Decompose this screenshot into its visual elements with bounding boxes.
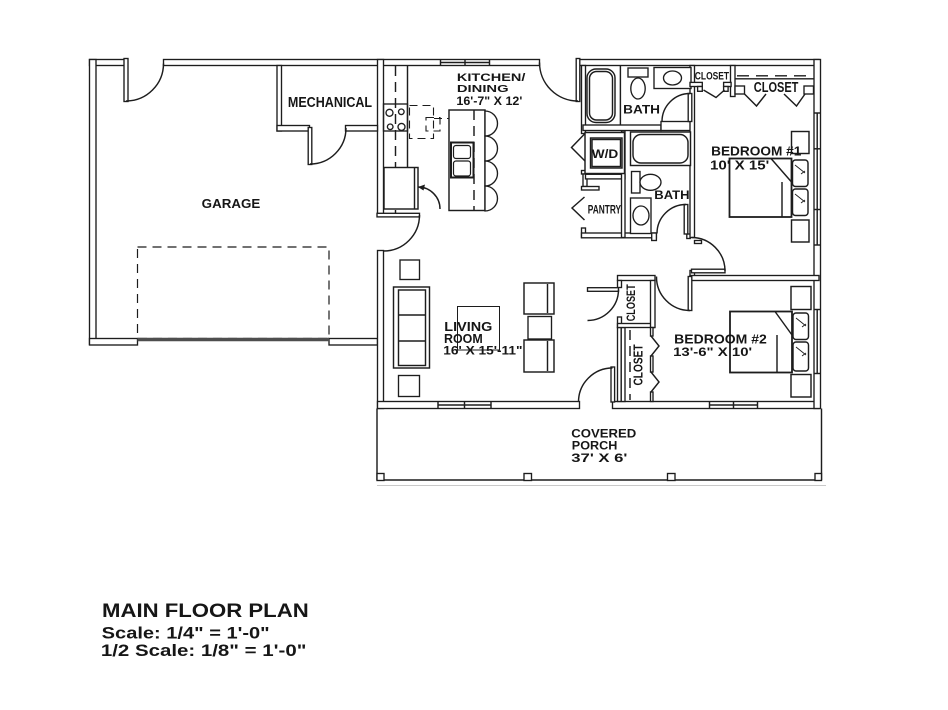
svg-text:PANTRY: PANTRY bbox=[588, 203, 621, 217]
svg-text:BATH: BATH bbox=[623, 103, 660, 117]
svg-text:KITCHEN/: KITCHEN/ bbox=[457, 72, 526, 84]
svg-text:CLOSET: CLOSET bbox=[695, 71, 729, 83]
svg-text:BEDROOM #1: BEDROOM #1 bbox=[711, 144, 801, 159]
svg-text:16' X 15'-11": 16' X 15'-11" bbox=[443, 344, 522, 358]
svg-text:1/2 Scale: 1/8" = 1'-0": 1/2 Scale: 1/8" = 1'-0" bbox=[101, 641, 307, 660]
svg-text:MECHANICAL: MECHANICAL bbox=[288, 95, 372, 111]
svg-text:37' X 6': 37' X 6' bbox=[571, 451, 627, 465]
svg-text:GARAGE: GARAGE bbox=[202, 197, 261, 211]
svg-text:BATH: BATH bbox=[654, 188, 689, 202]
svg-text:13'-6" X 10': 13'-6" X 10' bbox=[673, 345, 752, 359]
svg-text:10' X 15': 10' X 15' bbox=[710, 157, 769, 172]
svg-text:CLOSET: CLOSET bbox=[631, 344, 645, 385]
svg-text:CLOSET: CLOSET bbox=[754, 80, 799, 96]
svg-text:CLOSET: CLOSET bbox=[624, 284, 638, 322]
svg-text:DINING: DINING bbox=[457, 84, 509, 95]
svg-text:Scale: 1/4" = 1'-0": Scale: 1/4" = 1'-0" bbox=[102, 623, 270, 642]
svg-text:W/D: W/D bbox=[592, 149, 619, 161]
svg-text:16'-7" X 12': 16'-7" X 12' bbox=[456, 96, 522, 108]
svg-text:MAIN FLOOR PLAN: MAIN FLOOR PLAN bbox=[102, 600, 309, 622]
